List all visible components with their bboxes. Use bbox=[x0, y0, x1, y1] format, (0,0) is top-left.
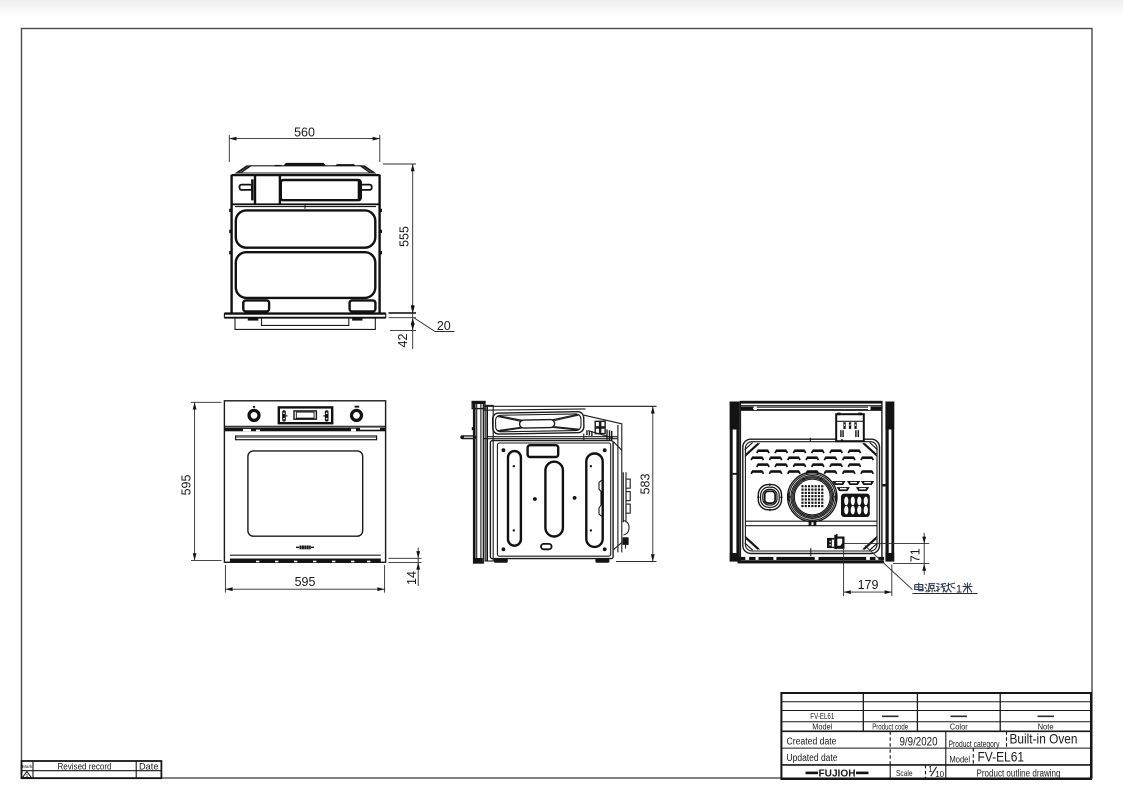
svg-text:Date: Date bbox=[139, 762, 159, 773]
svg-text:FV-EL61: FV-EL61 bbox=[978, 749, 1025, 764]
svg-text:Product category: Product category bbox=[949, 739, 1000, 749]
svg-text:71: 71 bbox=[909, 548, 923, 562]
svg-text:595: 595 bbox=[179, 475, 193, 496]
svg-text:Product code: Product code bbox=[872, 722, 908, 731]
svg-text:Model: Model bbox=[950, 754, 971, 764]
svg-text:Created date: Created date bbox=[787, 736, 837, 747]
svg-text:Scale: Scale bbox=[896, 769, 913, 778]
svg-text:FV-EL61: FV-EL61 bbox=[810, 712, 834, 721]
svg-text:1: 1 bbox=[956, 583, 962, 595]
svg-text:Built-in Oven: Built-in Oven bbox=[1010, 732, 1078, 747]
svg-text:Color: Color bbox=[950, 722, 968, 731]
svg-text:10: 10 bbox=[935, 770, 944, 779]
svg-text:20: 20 bbox=[437, 319, 451, 333]
svg-text:Model: Model bbox=[812, 722, 832, 731]
svg-text:Revised record: Revised record bbox=[58, 762, 112, 773]
svg-text:595: 595 bbox=[295, 575, 316, 589]
svg-text:Note: Note bbox=[1038, 722, 1054, 731]
svg-text:Mark: Mark bbox=[22, 764, 33, 769]
svg-text:1: 1 bbox=[26, 773, 29, 779]
svg-text:583: 583 bbox=[639, 474, 653, 495]
svg-text:555: 555 bbox=[398, 226, 412, 247]
svg-text:560: 560 bbox=[294, 125, 315, 139]
svg-text:9/9/2020: 9/9/2020 bbox=[900, 735, 938, 749]
svg-text:14: 14 bbox=[405, 571, 419, 585]
svg-text:FUJIOH: FUJIOH bbox=[819, 767, 856, 779]
svg-text:42: 42 bbox=[396, 334, 410, 348]
svg-text:Updated date: Updated date bbox=[787, 753, 838, 764]
svg-text:179: 179 bbox=[858, 578, 879, 592]
svg-text:Product outline drawing: Product outline drawing bbox=[977, 769, 1061, 780]
